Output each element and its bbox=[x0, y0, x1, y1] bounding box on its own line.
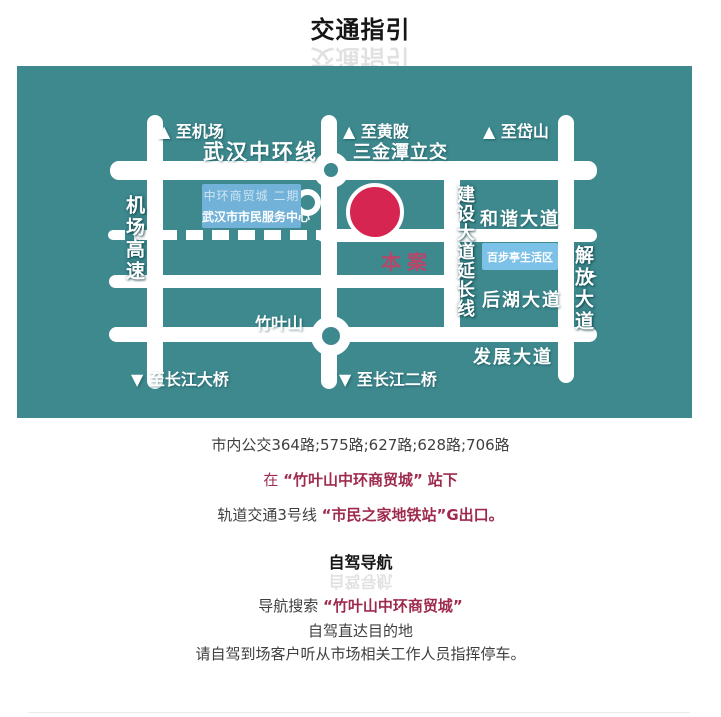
bus-routes-line: 市内公交364路;575路;627路;628路;706路 bbox=[0, 434, 721, 455]
label-fazhan-avenue: 发展大道 bbox=[473, 343, 553, 369]
road-fazhan-avenue bbox=[109, 327, 597, 342]
sanjintan-roundabout-center bbox=[324, 163, 338, 177]
road-houhu-west bbox=[109, 275, 453, 288]
label-to-daishan: ▲ 至岱山 bbox=[483, 118, 549, 142]
traffic-map: 中环商贸城 二期 武汉市市民服务中心 百步亭生活区 本案 ▲ 至机场 武汉中环线… bbox=[17, 66, 692, 418]
label-to-changjiang-second-bridge: ▼ 至长江二桥 bbox=[339, 366, 437, 390]
driving-search-prefix: 导航搜索 bbox=[258, 597, 318, 615]
bus-stop-line: 在 “竹叶山中环商贸城” 站下 bbox=[0, 469, 721, 490]
site-label: 本案 bbox=[381, 246, 433, 275]
metro-station: “市民之家地铁站”G出口。 bbox=[322, 506, 504, 524]
bus-stop-suffix: 站下 bbox=[428, 471, 458, 489]
bus-stop-prefix: 在 bbox=[263, 471, 278, 489]
bus-routes-text: 市内公交364路;575路;627路;628路;706路 bbox=[211, 436, 509, 454]
site-marker bbox=[346, 183, 404, 241]
label-zhonghuan-ring-road: 武汉中环线 bbox=[203, 136, 318, 166]
label-jianshe-avenue-extension: 建设大道延长线 bbox=[451, 185, 477, 318]
label-jiefang-avenue: 解放大道 bbox=[570, 245, 597, 333]
jiefang-arrow-icon: ► bbox=[589, 269, 597, 282]
mall-phase2-label: 中环商贸城 二期 bbox=[202, 187, 301, 204]
mall-landmark-box: 中环商贸城 二期 武汉市市民服务中心 bbox=[202, 184, 301, 228]
metro-line: 轨道交通3号线 “市民之家地铁站”G出口。 bbox=[0, 504, 721, 525]
metro-prefix: 轨道交通3号线 bbox=[217, 506, 317, 524]
label-sanjintan-interchange: 三金潭立交 bbox=[353, 138, 448, 164]
road-airport-expressway bbox=[147, 115, 163, 389]
page-title: 交通指引 bbox=[0, 10, 721, 45]
citizen-service-center-label: 武汉市市民服务中心 bbox=[202, 208, 301, 225]
driving-heading: 自驾导航 bbox=[0, 549, 721, 573]
driving-parking-text: 请自驾到场客户听从市场相关工作人员指挥停车。 bbox=[195, 645, 525, 663]
label-hexie-avenue: 和谐大道 bbox=[480, 205, 560, 231]
zhuyeshan-roundabout-center bbox=[322, 327, 340, 345]
driving-search-line: 导航搜索 “竹叶山中环商贸城” bbox=[0, 595, 721, 616]
driving-parking-line: 请自驾到场客户听从市场相关工作人员指挥停车。 bbox=[0, 643, 721, 664]
bus-stop-name: “竹叶山中环商贸城” bbox=[283, 471, 423, 489]
sanjintan-roundabout bbox=[313, 152, 349, 188]
label-airport-expressway: 机场高速 bbox=[121, 195, 148, 283]
driving-heading-reflection: 自驾导航 bbox=[0, 571, 721, 595]
label-to-changjiang-bridge: ▼ 至长江大桥 bbox=[131, 366, 229, 390]
bottom-divider bbox=[28, 712, 690, 713]
label-zhuyeshan: 竹叶山 bbox=[255, 310, 303, 334]
driving-direct-text: 自驾直达目的地 bbox=[308, 622, 413, 640]
label-houhu-avenue: 后湖大道 bbox=[482, 286, 562, 312]
driving-search-keyword: “竹叶山中环商贸城” bbox=[323, 597, 463, 615]
baibuting-landmark-box: 百步亭生活区 bbox=[482, 243, 558, 270]
driving-direct-line: 自驾直达目的地 bbox=[0, 620, 721, 641]
zhuyeshan-roundabout bbox=[311, 316, 351, 356]
